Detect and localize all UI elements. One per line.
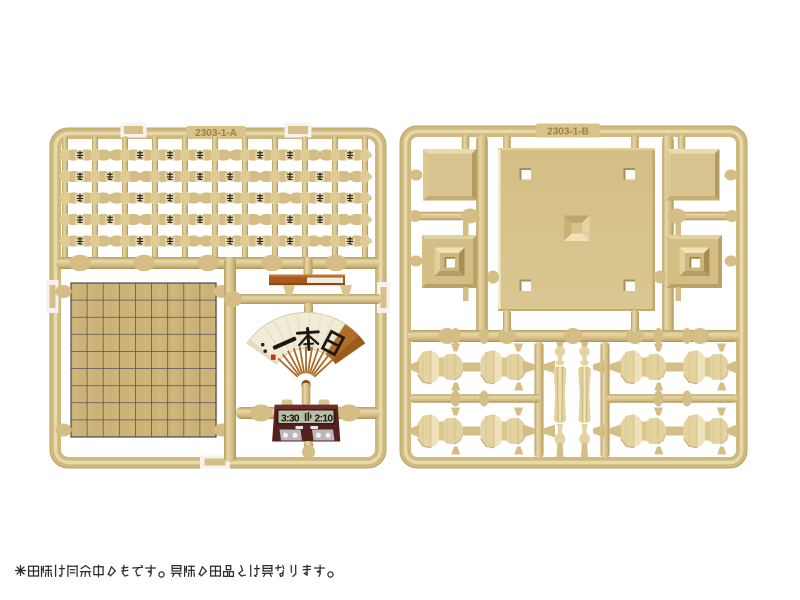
svg-text:3:30: 3:30 bbox=[281, 413, 300, 424]
svg-text:2303-1-B: 2303-1-B bbox=[547, 127, 589, 138]
svg-text:2:10: 2:10 bbox=[315, 413, 334, 424]
